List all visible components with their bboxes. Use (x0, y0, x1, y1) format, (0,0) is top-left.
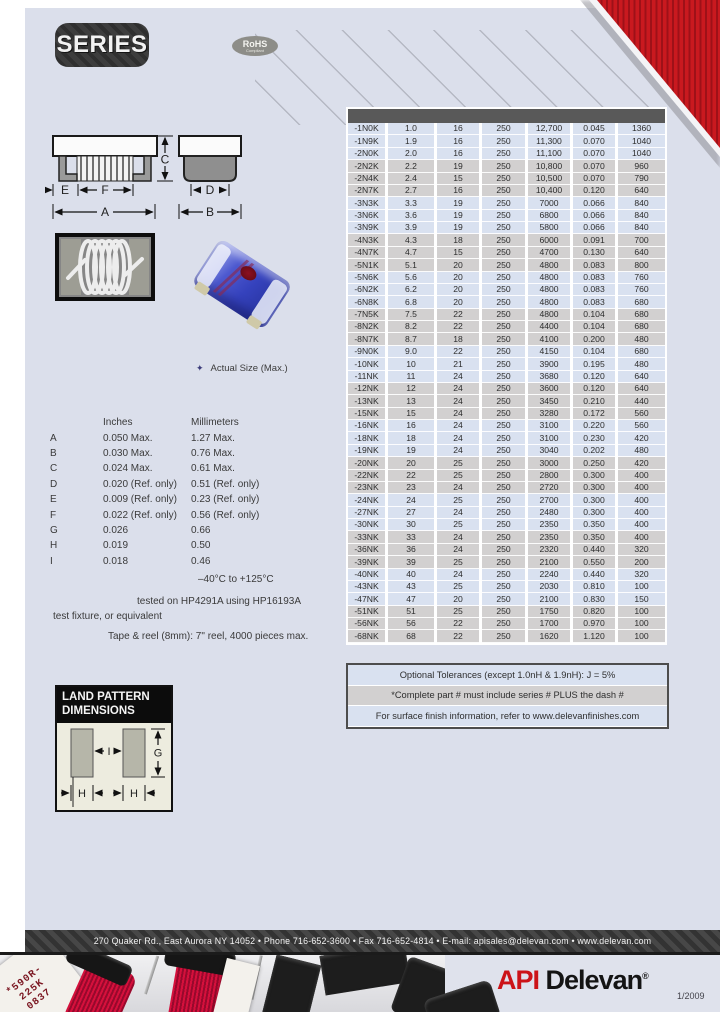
table-cell: 22 (437, 309, 479, 321)
dim-label-e: E (61, 183, 69, 197)
table-cell: 0.083 (573, 272, 615, 284)
table-cell: 250 (482, 395, 525, 407)
table-cell: 16 (437, 185, 479, 197)
table-cell: 4800 (528, 309, 570, 321)
table-cell: 790 (618, 173, 665, 185)
datasheet-page: SERIES RoHS Compliant C (0, 0, 720, 1012)
table-cell: 25 (437, 519, 479, 531)
table-cell: 100 (618, 618, 665, 630)
dim-value: 0.23 (Ref. only) (191, 494, 302, 505)
table-cell: 0.200 (573, 333, 615, 345)
table-cell: 4800 (528, 272, 570, 284)
table-cell: -11NK (348, 371, 385, 383)
table-cell: 480 (618, 333, 665, 345)
table-cell: 250 (482, 296, 525, 308)
table-cell: 0.091 (573, 234, 615, 246)
table-cell: -68NK (348, 630, 385, 642)
table-cell: 15 (437, 247, 479, 259)
table-cell: -40NK (348, 569, 385, 581)
table-cell: 0.300 (573, 482, 615, 494)
table-cell: 0.440 (573, 569, 615, 581)
table-cell: 250 (482, 148, 525, 160)
table-cell: 2720 (528, 482, 570, 494)
dim-letter: B (50, 448, 103, 459)
dim-label-f: F (101, 183, 108, 197)
table-cell: 2.0 (388, 148, 434, 160)
table-cell: 12,700 (528, 123, 570, 135)
table-cell: 0.120 (573, 185, 615, 197)
table-cell: 250 (482, 482, 525, 494)
table-cell: 3900 (528, 358, 570, 370)
table-cell: 0.202 (573, 445, 615, 457)
dim-letter: E (50, 494, 103, 505)
parts-table: -1N0K1.01625012,7000.0451360-1N9K1.91625… (346, 107, 667, 645)
table-cell: 24 (437, 408, 479, 420)
table-cell: 24 (388, 494, 434, 506)
table-cell: 100 (618, 606, 665, 618)
table-cell: 3100 (528, 432, 570, 444)
table-cell: 250 (482, 160, 525, 172)
table-cell: 0.440 (573, 544, 615, 556)
table-cell: 19 (437, 197, 479, 209)
logo-panel: API Delevan® 1/2009 (445, 955, 720, 1012)
table-cell: 840 (618, 197, 665, 209)
table-cell: 21 (437, 358, 479, 370)
table-cell: 840 (618, 210, 665, 222)
table-cell: 100 (618, 581, 665, 593)
dim-letter: I (50, 556, 103, 567)
table-cell: 1040 (618, 135, 665, 147)
table-cell: 760 (618, 284, 665, 296)
table-cell: 0.300 (573, 470, 615, 482)
table-cell: 320 (618, 544, 665, 556)
table-cell: 0.300 (573, 507, 615, 519)
table-cell: 680 (618, 296, 665, 308)
table-cell: 250 (482, 185, 525, 197)
table-cell: -15NK (348, 408, 385, 420)
table-cell: 3280 (528, 408, 570, 420)
table-cell: 13 (388, 395, 434, 407)
table-cell: -20NK (348, 457, 385, 469)
table-cell: 150 (618, 593, 665, 605)
table-cell: 1040 (618, 148, 665, 160)
table-cell: 3450 (528, 395, 570, 407)
component-dimension-drawing: C E F A D B (45, 128, 255, 228)
land-pattern-title: LAND PATTERN DIMENSIONS (57, 687, 171, 723)
table-cell: 7.5 (388, 309, 434, 321)
table-cell: -10NK (348, 358, 385, 370)
black-component (261, 954, 322, 1012)
dim-value: 0.030 Max. (103, 448, 191, 459)
table-cell: 3680 (528, 371, 570, 383)
series-label: SERIES (56, 31, 147, 59)
table-cell: 250 (482, 123, 525, 135)
table-cell: -3N9K (348, 222, 385, 234)
dim-value: 0.50 (191, 540, 302, 551)
table-cell: 0.070 (573, 173, 615, 185)
table-cell: 22 (437, 618, 479, 630)
table-cell: 11,300 (528, 135, 570, 147)
table-cell: 250 (482, 259, 525, 271)
table-cell: 2030 (528, 581, 570, 593)
table-cell: 0.300 (573, 494, 615, 506)
table-cell: 4100 (528, 333, 570, 345)
table-cell: 7000 (528, 197, 570, 209)
table-cell: 8.2 (388, 321, 434, 333)
table-cell: 19 (437, 222, 479, 234)
table-cell: 23 (388, 482, 434, 494)
table-cell: 0.810 (573, 581, 615, 593)
table-cell: 0.070 (573, 148, 615, 160)
table-cell: 0.120 (573, 371, 615, 383)
dim-letter: G (50, 525, 103, 536)
table-cell: -12NK (348, 383, 385, 395)
table-cell: 100 (618, 630, 665, 642)
land-pattern-drawing: I G H H (57, 723, 171, 811)
table-cell: -7N5K (348, 309, 385, 321)
table-cell: 16 (437, 123, 479, 135)
dim-value: 1.27 Max. (191, 433, 302, 444)
table-cell: 680 (618, 321, 665, 333)
table-cell: -3N6K (348, 210, 385, 222)
table-cell: 5.1 (388, 259, 434, 271)
table-cell: 18 (437, 234, 479, 246)
dim-value: 0.51 (Ref. only) (191, 479, 302, 490)
table-cell: 2.4 (388, 173, 434, 185)
dim-value: 0.024 Max. (103, 463, 191, 474)
table-cell: 22 (388, 470, 434, 482)
table-cell: 3100 (528, 420, 570, 432)
table-cell: 200 (618, 556, 665, 568)
table-cell: 250 (482, 333, 525, 345)
table-cell: -18NK (348, 432, 385, 444)
table-cell: 4800 (528, 284, 570, 296)
table-cell: 0.083 (573, 259, 615, 271)
table-cell: 56 (388, 618, 434, 630)
dim-label-c: C (161, 153, 170, 167)
table-cell: 18 (388, 432, 434, 444)
table-cell: 0.083 (573, 296, 615, 308)
table-cell: 22 (437, 630, 479, 642)
table-cell: 250 (482, 556, 525, 568)
table-cell: 250 (482, 420, 525, 432)
table-cell: -2N2K (348, 160, 385, 172)
table-cell: 9.0 (388, 346, 434, 358)
table-cell: 1.0 (388, 123, 434, 135)
table-cell: 3.9 (388, 222, 434, 234)
table-cell: 4400 (528, 321, 570, 333)
table-cell: 0.210 (573, 395, 615, 407)
table-cell: 400 (618, 494, 665, 506)
table-cell: 36 (388, 544, 434, 556)
table-cell: 24 (437, 482, 479, 494)
table-cell: 640 (618, 185, 665, 197)
table-cell: 2480 (528, 507, 570, 519)
dim-value: 0.56 (Ref. only) (191, 510, 302, 521)
table-cell: 16 (437, 148, 479, 160)
table-cell: 4800 (528, 259, 570, 271)
table-cell: 3000 (528, 457, 570, 469)
table-cell: 250 (482, 606, 525, 618)
table-cell: 24 (437, 445, 479, 457)
table-cell: -2N0K (348, 148, 385, 160)
dim-value: 0.018 (103, 556, 191, 567)
logo-delevan: Delevan (546, 965, 643, 995)
table-cell: 250 (482, 630, 525, 642)
table-cell: 25 (437, 457, 479, 469)
table-cell: 560 (618, 420, 665, 432)
table-cell: 0.083 (573, 284, 615, 296)
dim-label-a: A (101, 205, 109, 219)
dim-value: 0.022 (Ref. only) (103, 510, 191, 521)
table-cell: 16 (388, 420, 434, 432)
table-cell: 0.120 (573, 383, 615, 395)
table-cell: 250 (482, 197, 525, 209)
table-cell: 250 (482, 470, 525, 482)
star-bullet-icon: ✦ (196, 363, 204, 373)
table-cell: 250 (482, 531, 525, 543)
table-cell: 1700 (528, 618, 570, 630)
dim-col-mm: Millimeters (191, 417, 302, 428)
table-cell: 6.2 (388, 284, 434, 296)
table-cell: 10,400 (528, 185, 570, 197)
table-cell: 2320 (528, 544, 570, 556)
table-cell: 250 (482, 234, 525, 246)
dim-letter: C (50, 463, 103, 474)
table-cell: 0.070 (573, 135, 615, 147)
table-cell: 43 (388, 581, 434, 593)
chip-body (191, 238, 293, 330)
table-cell: 11 (388, 371, 434, 383)
table-cell: 0.830 (573, 593, 615, 605)
table-cell: 1360 (618, 123, 665, 135)
table-cell: 0.970 (573, 618, 615, 630)
table-cell: 320 (618, 569, 665, 581)
table-cell: 5.6 (388, 272, 434, 284)
table-cell: 250 (482, 272, 525, 284)
table-cell: 2100 (528, 593, 570, 605)
dim-label-d: D (206, 183, 215, 197)
table-cell: 800 (618, 259, 665, 271)
table-cell: 0.350 (573, 519, 615, 531)
dim-value: 0.46 (191, 556, 302, 567)
table-cell: -36NK (348, 544, 385, 556)
table-cell: 250 (482, 507, 525, 519)
table-cell: 11,100 (528, 148, 570, 160)
table-cell: -16NK (348, 420, 385, 432)
table-cell: 3040 (528, 445, 570, 457)
table-cell: -33NK (348, 531, 385, 543)
rohs-sublabel: Compliant (246, 49, 264, 53)
table-cell: 1.9 (388, 135, 434, 147)
table-cell: 3.6 (388, 210, 434, 222)
table-cell: -39NK (348, 556, 385, 568)
table-cell: 2700 (528, 494, 570, 506)
table-cell: 3600 (528, 383, 570, 395)
table-cell: 250 (482, 457, 525, 469)
table-cell: -47NK (348, 593, 385, 605)
table-cell: 2800 (528, 470, 570, 482)
table-cell: 560 (618, 408, 665, 420)
table-cell: 25 (437, 606, 479, 618)
rohs-badge: RoHS Compliant (232, 36, 278, 56)
table-cell: 0.066 (573, 210, 615, 222)
table-cell: 4150 (528, 346, 570, 358)
table-cell: -19NK (348, 445, 385, 457)
table-cell: 400 (618, 482, 665, 494)
table-cell: 250 (482, 358, 525, 370)
table-cell: -13NK (348, 395, 385, 407)
table-cell: 250 (482, 346, 525, 358)
table-cell: 68 (388, 630, 434, 642)
table-cell: 0.130 (573, 247, 615, 259)
table-cell: -24NK (348, 494, 385, 506)
table-cell: 24 (437, 383, 479, 395)
table-cell: 2350 (528, 519, 570, 531)
table-cell: 250 (482, 371, 525, 383)
dim-label-b: B (206, 205, 214, 219)
table-cell: -23NK (348, 482, 385, 494)
tape-reel-note: Tape & reel (8mm): 7" reel, 4000 pieces … (108, 631, 308, 642)
table-cell: -3N3K (348, 197, 385, 209)
parts-table-header-bar (348, 109, 665, 123)
table-cell: 20 (437, 272, 479, 284)
table-cell: 25 (437, 494, 479, 506)
table-cell: 0.172 (573, 408, 615, 420)
table-cell: 51 (388, 606, 434, 618)
table-cell: -30NK (348, 519, 385, 531)
table-cell: 250 (482, 544, 525, 556)
product-photo-strip: *590R- 225K 0837 API Delevan® 1/2009 (0, 952, 720, 1012)
table-cell: -43NK (348, 581, 385, 593)
table-cell: 680 (618, 309, 665, 321)
footer-address-bar: 270 Quaker Rd., East Aurora NY 14052 • P… (25, 930, 720, 952)
table-cell: 47 (388, 593, 434, 605)
tolerance-note: Optional Tolerances (except 1.0nH & 1.9n… (348, 665, 667, 686)
table-cell: 250 (482, 284, 525, 296)
table-cell: 0.820 (573, 606, 615, 618)
tolerance-notes-box: Optional Tolerances (except 1.0nH & 1.9n… (346, 663, 669, 729)
table-cell: 0.070 (573, 160, 615, 172)
table-cell: 2240 (528, 569, 570, 581)
table-cell: 5800 (528, 222, 570, 234)
table-cell: 22 (437, 346, 479, 358)
table-cell: 840 (618, 222, 665, 234)
land-pattern-box: LAND PATTERN DIMENSIONS I G H (55, 685, 173, 812)
table-cell: 24 (437, 531, 479, 543)
dim-letter: D (50, 479, 103, 490)
table-cell: 480 (618, 445, 665, 457)
table-cell: 25 (437, 556, 479, 568)
table-cell: 25 (437, 581, 479, 593)
table-cell: -4N3K (348, 234, 385, 246)
table-cell: 6800 (528, 210, 570, 222)
table-cell: 480 (618, 358, 665, 370)
table-cell: 250 (482, 309, 525, 321)
table-cell: -22NK (348, 470, 385, 482)
date-stamp: 1/2009 (677, 991, 705, 1001)
table-cell: 1750 (528, 606, 570, 618)
table-cell: 760 (618, 272, 665, 284)
table-cell: -5N1K (348, 259, 385, 271)
table-cell: 19 (388, 445, 434, 457)
wire-lead (144, 956, 159, 995)
table-cell: 15 (437, 173, 479, 185)
table-cell: 250 (482, 569, 525, 581)
table-cell: 20 (437, 593, 479, 605)
dim-value: 0.76 Max. (191, 448, 302, 459)
table-cell: 440 (618, 395, 665, 407)
table-cell: 4.3 (388, 234, 434, 246)
table-cell: 1.120 (573, 630, 615, 642)
coil-top-view-drawing (55, 233, 155, 301)
table-cell: 0.550 (573, 556, 615, 568)
table-cell: 20 (437, 296, 479, 308)
company-logo: API Delevan® (497, 965, 648, 996)
table-cell: 10,800 (528, 160, 570, 172)
table-cell: 8.7 (388, 333, 434, 345)
table-cell: 0.250 (573, 457, 615, 469)
table-cell: 2.7 (388, 185, 434, 197)
table-cell: 20 (437, 284, 479, 296)
table-cell: 400 (618, 470, 665, 482)
table-cell: 0.195 (573, 358, 615, 370)
table-cell: 15 (388, 408, 434, 420)
table-cell: -6N8K (348, 296, 385, 308)
table-cell: 420 (618, 457, 665, 469)
chip-photo (193, 243, 293, 329)
table-cell: 1620 (528, 630, 570, 642)
series-badge: SERIES (55, 23, 149, 67)
table-cell: 30 (388, 519, 434, 531)
table-cell: 24 (437, 507, 479, 519)
lp-label-g: G (154, 747, 163, 759)
table-cell: 4700 (528, 247, 570, 259)
table-cell: 250 (482, 408, 525, 420)
table-cell: 3.3 (388, 197, 434, 209)
footer-address: 270 Quaker Rd., East Aurora NY 14052 • P… (94, 936, 652, 946)
table-cell: 250 (482, 321, 525, 333)
table-cell: 250 (482, 581, 525, 593)
table-cell: 18 (437, 333, 479, 345)
table-cell: 420 (618, 432, 665, 444)
table-cell: 19 (437, 210, 479, 222)
table-cell: 0.066 (573, 197, 615, 209)
dim-value: 0.020 (Ref. only) (103, 479, 191, 490)
table-cell: 20 (388, 457, 434, 469)
table-cell: 250 (482, 210, 525, 222)
dimensions-list: Inches Millimeters A0.050 Max.1.27 Max.B… (50, 415, 302, 569)
table-cell: 39 (388, 556, 434, 568)
table-cell: 640 (618, 371, 665, 383)
table-cell: 22 (437, 321, 479, 333)
table-cell: 0.104 (573, 309, 615, 321)
table-cell: -9N0K (348, 346, 385, 358)
temp-range-note: –40°C to +125°C (198, 574, 274, 585)
table-cell: 2100 (528, 556, 570, 568)
table-cell: 6.8 (388, 296, 434, 308)
table-cell: 640 (618, 383, 665, 395)
table-cell: 0.350 (573, 531, 615, 543)
table-cell: 250 (482, 618, 525, 630)
actual-size-note: ✦Actual Size (Max.) (196, 363, 288, 374)
dim-value: 0.026 (103, 525, 191, 536)
table-cell: 0.220 (573, 420, 615, 432)
table-cell: 2350 (528, 531, 570, 543)
dim-value: 0.66 (191, 525, 302, 536)
table-cell: 25 (437, 470, 479, 482)
table-cell: 0.104 (573, 321, 615, 333)
